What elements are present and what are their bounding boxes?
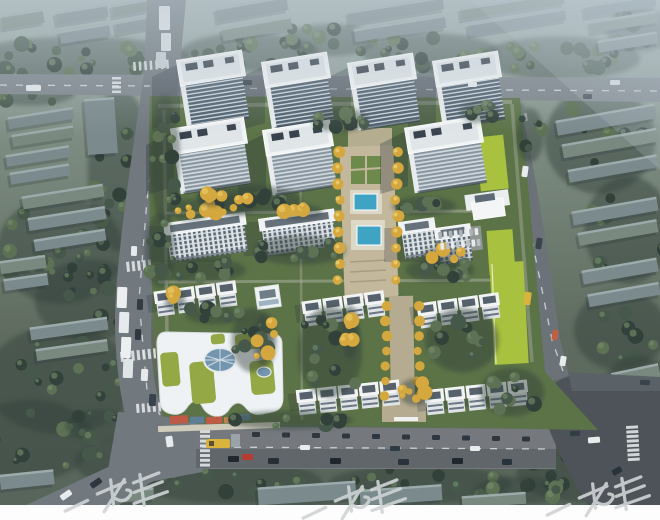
yellow-tree <box>266 317 278 329</box>
yellow-tree <box>261 345 276 360</box>
yellow-tree <box>406 388 413 395</box>
parked-car <box>464 229 468 236</box>
tree <box>255 251 268 264</box>
tree <box>149 156 155 162</box>
tree-highlight <box>323 322 326 325</box>
tree-highlight <box>649 341 654 346</box>
tree <box>228 413 242 427</box>
tree <box>628 328 644 344</box>
car <box>131 246 137 256</box>
tree-highlight <box>167 197 170 200</box>
parked-car <box>443 231 447 238</box>
tree-highlight <box>154 233 161 240</box>
tree-highlight <box>457 248 462 253</box>
tree <box>233 307 244 318</box>
yellow-tree <box>450 255 458 263</box>
tree-highlight <box>308 372 313 377</box>
tree <box>618 306 632 320</box>
tree-highlight <box>8 220 13 225</box>
parked-car <box>445 242 449 249</box>
tree-highlight <box>340 336 345 341</box>
tree-highlight <box>235 196 239 200</box>
yellow-tree <box>381 377 389 385</box>
tree <box>184 302 197 315</box>
tree-highlight <box>4 245 10 251</box>
yellow-tree <box>200 186 214 200</box>
tree-highlight <box>170 257 173 260</box>
tree <box>486 481 500 495</box>
tree-highlight <box>302 322 306 326</box>
tree-highlight <box>259 242 264 247</box>
tree-highlight <box>230 414 236 420</box>
tree <box>367 473 376 482</box>
townhouse-facade <box>319 398 337 413</box>
yellow-tree <box>382 347 391 356</box>
parked-car <box>432 435 440 440</box>
tree-highlight <box>528 397 535 404</box>
tree <box>309 353 320 364</box>
yellow-tree <box>251 334 264 347</box>
tree <box>104 386 116 398</box>
tree-highlight <box>188 263 193 268</box>
tree-highlight <box>394 149 398 153</box>
parked-car <box>252 432 260 437</box>
render-canvas <box>0 0 660 520</box>
tree <box>512 385 519 392</box>
tree <box>349 377 361 389</box>
tree <box>451 314 467 330</box>
yellow-tree <box>426 251 439 264</box>
tree <box>199 313 209 323</box>
tree-highlight <box>293 477 300 484</box>
yellow-tree <box>379 391 389 401</box>
tree <box>648 340 658 350</box>
tree-highlight <box>242 329 245 332</box>
yellow-tree <box>168 293 177 302</box>
tree <box>432 199 440 207</box>
tree <box>160 219 168 227</box>
car <box>452 458 463 464</box>
tree-highlight <box>429 347 435 353</box>
tree-cluster <box>480 368 544 417</box>
yellow-tree <box>397 385 407 395</box>
tree <box>102 363 110 371</box>
parked-car <box>438 232 442 239</box>
tree-highlight <box>487 483 493 489</box>
tree <box>169 256 176 263</box>
play-mat-red <box>170 415 188 424</box>
yellow-tree <box>299 202 307 210</box>
tree <box>12 457 19 464</box>
tree <box>469 351 477 359</box>
yellow-tree <box>392 162 403 173</box>
bus <box>119 312 130 333</box>
parked-car <box>462 436 470 441</box>
tree-highlight <box>394 165 398 169</box>
tree-highlight <box>48 385 53 390</box>
tree-highlight <box>336 181 340 185</box>
tree <box>165 235 171 241</box>
tree <box>210 306 222 318</box>
tree <box>104 199 114 209</box>
tree-highlight <box>453 481 458 486</box>
tree <box>218 484 233 499</box>
car <box>470 446 480 451</box>
tree-highlight <box>85 432 92 439</box>
tree-highlight <box>336 261 340 265</box>
tree <box>301 321 309 329</box>
tree-highlight <box>470 352 473 355</box>
parked-car <box>492 436 500 441</box>
swimming-pool-2 <box>357 226 381 245</box>
tree-highlight <box>394 261 398 265</box>
townhouse-facade <box>447 398 465 413</box>
yellow-tree <box>345 321 353 329</box>
tree-highlight <box>176 273 180 277</box>
tree <box>526 396 542 412</box>
crosswalk-stripe <box>200 435 210 438</box>
tree <box>451 480 463 492</box>
tree <box>470 331 478 339</box>
tree <box>501 392 513 404</box>
tree-highlight <box>202 188 209 195</box>
tree <box>34 378 42 386</box>
tree-highlight <box>435 264 438 267</box>
yellow-tree <box>270 330 278 338</box>
tree-highlight <box>273 423 276 426</box>
parked-car <box>448 231 452 238</box>
crosswalk-stripe <box>628 458 640 462</box>
red-car <box>242 454 253 460</box>
tree-highlight <box>186 205 189 208</box>
yellow-tree <box>414 301 424 311</box>
tree <box>73 363 84 374</box>
car <box>135 329 141 340</box>
tree <box>154 263 167 276</box>
tree <box>605 193 615 203</box>
tree <box>98 266 112 280</box>
tree-highlight <box>169 294 173 298</box>
tree <box>6 219 17 230</box>
tree <box>47 384 57 394</box>
yellow-tree <box>414 316 425 327</box>
tree-highlight <box>254 353 257 356</box>
parked-car <box>459 230 463 237</box>
tree <box>598 310 610 322</box>
tree-highlight <box>97 392 102 397</box>
car <box>570 431 580 437</box>
townhouse-roof-panel <box>448 389 462 397</box>
tree-highlight <box>488 377 494 383</box>
parked-car <box>282 433 290 438</box>
tree-highlight <box>336 197 340 201</box>
yellow-tree <box>185 204 191 210</box>
tree <box>329 364 341 376</box>
tree-highlight <box>168 135 172 139</box>
bus-windshield <box>209 441 214 446</box>
car <box>588 437 600 444</box>
tree <box>551 485 560 494</box>
tree-highlight <box>115 379 119 383</box>
tree-highlight <box>168 287 175 294</box>
tree <box>165 150 180 165</box>
tree-highlight <box>35 379 39 383</box>
tree-highlight <box>331 253 334 256</box>
tree-highlight <box>87 272 90 275</box>
tree <box>435 331 449 345</box>
crosswalk-stripe <box>627 448 639 452</box>
tree <box>165 242 171 248</box>
tree <box>2 244 16 258</box>
parked-car <box>522 437 530 442</box>
tree-highlight <box>394 213 398 217</box>
tree-highlight <box>346 314 353 321</box>
tree <box>83 430 98 445</box>
tree-highlight <box>17 360 22 365</box>
tree-highlight <box>300 203 304 207</box>
tree-highlight <box>63 462 66 465</box>
tree <box>62 462 69 469</box>
tree <box>220 257 232 269</box>
tree-highlight <box>336 149 340 153</box>
yellow-tree <box>334 211 345 222</box>
tree <box>493 379 502 388</box>
tree-highlight <box>235 308 240 313</box>
tree <box>494 403 506 415</box>
tree <box>174 182 181 189</box>
tree-highlight <box>176 208 179 211</box>
tree-highlight <box>174 480 179 485</box>
tree-highlight <box>110 360 116 366</box>
parked-car <box>372 434 380 439</box>
tree-highlight <box>99 268 105 274</box>
yellow-tree <box>333 146 345 158</box>
bus-shelter <box>231 434 240 447</box>
tree-highlight <box>224 313 229 318</box>
bus <box>117 287 128 308</box>
crosswalk-stripe <box>627 453 639 457</box>
tree-highlight <box>394 245 398 249</box>
crosswalk-stripe <box>626 435 638 439</box>
parked-car <box>342 434 350 439</box>
yellow-tree <box>382 301 392 311</box>
tree-highlight <box>267 318 272 323</box>
tree-highlight <box>161 220 165 224</box>
tree <box>509 372 520 383</box>
crosswalk-stripe <box>136 404 140 413</box>
tree <box>339 413 347 421</box>
tree-highlight <box>599 311 604 316</box>
yellow-tree <box>216 190 227 201</box>
tree-highlight <box>421 263 428 270</box>
swimming-pool-1 <box>354 194 377 210</box>
tree <box>307 371 318 382</box>
crosswalk-stripe <box>200 449 210 452</box>
yellow-tree <box>415 361 425 371</box>
bus <box>123 359 134 378</box>
yellow-tree <box>230 204 238 212</box>
townhouse-facade <box>361 394 379 409</box>
yellow-tree <box>380 316 390 326</box>
tree-highlight <box>113 416 116 419</box>
tree-highlight <box>436 332 442 338</box>
tree-highlight <box>51 372 57 378</box>
crosswalk-stripe <box>200 454 210 457</box>
yellow-tree <box>339 335 350 346</box>
parked-car <box>474 228 478 235</box>
tree <box>86 271 94 279</box>
tree-highlight <box>394 181 398 185</box>
bus <box>121 337 132 358</box>
car <box>228 456 239 462</box>
tree-highlight <box>598 343 604 349</box>
tree <box>222 312 233 323</box>
car <box>149 394 157 406</box>
tree-highlight <box>352 477 356 481</box>
tree-highlight <box>85 250 88 253</box>
crosswalk-stripe <box>141 403 145 412</box>
townhouse-roof-panel <box>299 391 313 399</box>
tree <box>462 273 471 282</box>
townhouse-facade <box>340 396 358 411</box>
tree-highlight <box>64 273 69 278</box>
car <box>268 458 279 464</box>
crosswalk-stripe <box>626 425 638 429</box>
play-mat-blue <box>190 416 204 424</box>
tree-highlight <box>172 197 176 201</box>
townhouse-facade <box>426 401 444 416</box>
car <box>141 369 149 381</box>
crosswalk-stripe <box>626 430 638 434</box>
tree-highlight <box>336 245 340 249</box>
tree <box>232 472 240 480</box>
tree <box>520 480 533 493</box>
tree-highlight <box>511 373 516 378</box>
tree <box>479 338 486 345</box>
tree-highlight <box>630 330 637 337</box>
clubhouse <box>255 284 282 309</box>
tree <box>82 447 96 461</box>
yellow-tree <box>417 385 432 400</box>
tree <box>238 339 251 352</box>
car <box>137 299 143 310</box>
tree <box>296 246 309 259</box>
tree <box>258 241 268 251</box>
parked-car <box>451 242 455 249</box>
parked-car <box>469 229 473 236</box>
tree <box>331 252 337 258</box>
tree <box>241 328 247 334</box>
tree-highlight <box>13 458 16 461</box>
tree <box>15 359 27 371</box>
tree-highlight <box>595 257 602 264</box>
yellow-tree <box>254 353 260 359</box>
tree <box>282 414 290 422</box>
tree-highlight <box>336 229 340 233</box>
tree-highlight <box>489 472 494 477</box>
car <box>398 459 409 465</box>
south-gate <box>394 417 418 421</box>
tree-highlight <box>624 322 630 328</box>
tree-highlight <box>325 239 331 245</box>
tree <box>186 262 198 274</box>
tree <box>195 272 206 283</box>
tree <box>427 345 441 359</box>
tree-highlight <box>76 254 80 258</box>
tree-highlight <box>336 165 340 169</box>
parked-car <box>466 240 470 247</box>
tree-highlight <box>399 386 404 391</box>
tree <box>432 469 445 482</box>
yellow-tree <box>334 242 346 254</box>
tree <box>112 188 126 202</box>
tree <box>100 281 116 297</box>
tree-highlight <box>394 197 398 201</box>
tree-highlight <box>196 273 201 278</box>
tree-highlight <box>618 355 622 359</box>
tree <box>321 413 334 426</box>
parked-car <box>440 243 444 250</box>
aerial-render-image <box>0 0 660 520</box>
parked-car <box>454 230 458 237</box>
tree-highlight <box>273 198 280 205</box>
parked-car <box>402 435 410 440</box>
tree <box>26 408 35 417</box>
tree <box>597 342 610 355</box>
tree-highlight <box>463 274 467 278</box>
parked-car <box>461 240 465 247</box>
tree-highlight <box>283 415 287 419</box>
parked-car <box>476 239 480 246</box>
tree <box>272 422 279 429</box>
crosswalk-stripe <box>627 439 639 443</box>
yellow-tree <box>413 347 421 355</box>
tree-highlight <box>278 205 285 212</box>
yellow-tree <box>381 361 390 370</box>
tree <box>96 452 102 458</box>
yellow-tree <box>175 207 182 214</box>
tree <box>430 321 441 332</box>
tree-highlight <box>312 345 318 351</box>
tree <box>146 238 154 246</box>
yellow-tree <box>234 195 244 205</box>
crosswalk-stripe <box>200 464 210 467</box>
tree-highlight <box>394 229 398 233</box>
yellow-tree <box>391 226 402 237</box>
tree-highlight <box>119 203 124 208</box>
tree-highlight <box>336 213 340 217</box>
townhouse-roof-panel <box>362 385 376 393</box>
tree-highlight <box>243 194 248 199</box>
crosswalk-stripe <box>627 444 639 448</box>
tree-highlight <box>257 480 262 485</box>
tree <box>401 203 413 215</box>
tree-highlight <box>545 481 549 485</box>
tree-highlight <box>160 155 164 159</box>
tree <box>218 268 230 280</box>
tree <box>63 272 73 282</box>
car <box>300 445 310 450</box>
tree-highlight <box>297 247 303 253</box>
tree <box>173 479 183 489</box>
tree-highlight <box>394 277 398 281</box>
play-mat-red <box>206 416 222 424</box>
tree <box>256 192 270 206</box>
tree-highlight <box>122 156 128 162</box>
tree <box>96 391 106 401</box>
tree <box>63 290 75 302</box>
yellow-tree <box>414 331 423 340</box>
